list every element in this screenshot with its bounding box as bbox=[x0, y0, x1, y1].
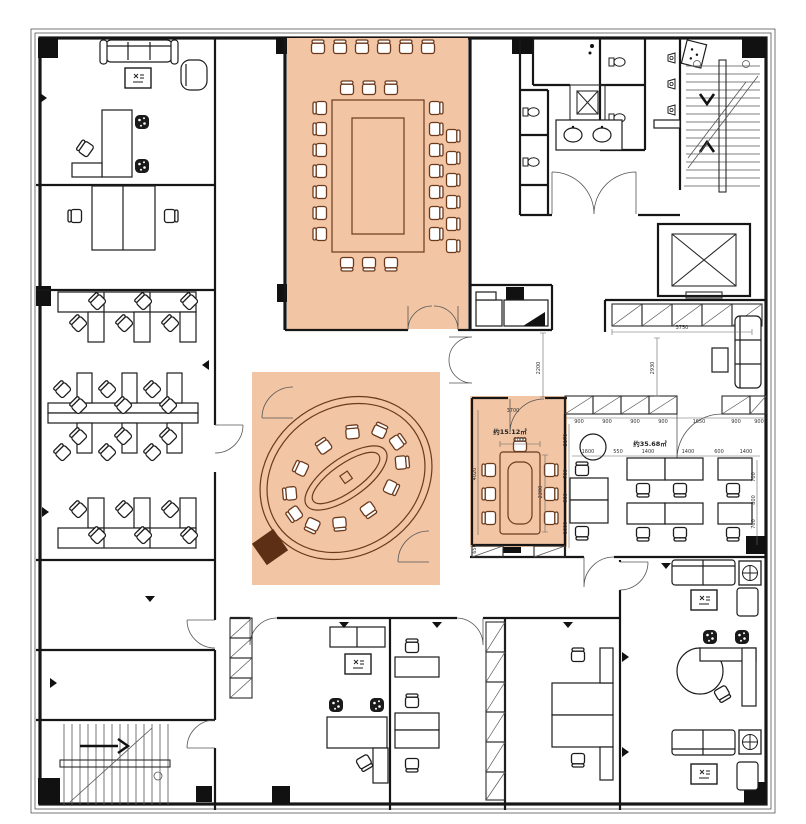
svg-text:1400: 1400 bbox=[740, 449, 753, 455]
tv-cabinet-icon bbox=[691, 590, 717, 610]
chair bbox=[68, 210, 82, 223]
tv-cabinet-icon bbox=[691, 764, 717, 784]
label-small-meeting-area: 约15.12㎡ bbox=[493, 427, 527, 436]
plant-icon bbox=[735, 630, 749, 644]
dim-meeting-h: 2200 bbox=[538, 486, 544, 499]
svg-text:1600: 1600 bbox=[582, 449, 595, 455]
bottom-office-a bbox=[327, 622, 388, 783]
dim-lounge-w: 3750 bbox=[676, 325, 689, 331]
toilet-icon bbox=[523, 158, 539, 166]
floor-plan-svg: 2200 3750 2930 900 900 900 900 1650 900 … bbox=[0, 0, 806, 824]
plant-icon bbox=[703, 630, 717, 644]
chair bbox=[356, 754, 374, 772]
svg-text:900: 900 bbox=[630, 419, 640, 425]
open-office bbox=[570, 434, 752, 541]
dim-lounge-h: 2930 bbox=[650, 362, 656, 375]
office-two-desk bbox=[68, 186, 178, 250]
cabinet-column-bottom-left bbox=[230, 618, 252, 698]
svg-text:600: 600 bbox=[714, 449, 724, 455]
sofa bbox=[106, 40, 172, 62]
round-side-table bbox=[739, 561, 761, 585]
ceiling-fixture-icon bbox=[563, 622, 573, 628]
chair bbox=[76, 139, 95, 157]
svg-text:1400: 1400 bbox=[682, 449, 695, 455]
plant-icon bbox=[135, 159, 149, 173]
svg-text:550: 550 bbox=[613, 449, 623, 455]
reception-room bbox=[40, 40, 207, 177]
shaft-x bbox=[577, 91, 598, 114]
wall-fixture-icon bbox=[42, 507, 49, 517]
wall-fixture-icon bbox=[622, 747, 629, 757]
dim-meeting-left: 4020 bbox=[472, 468, 478, 481]
plant-icon bbox=[329, 698, 343, 712]
highlight-large-conference bbox=[287, 38, 468, 329]
svg-text:700: 700 bbox=[751, 519, 757, 529]
toilet-icon bbox=[523, 108, 539, 116]
mop-sink bbox=[681, 40, 706, 68]
bottom-office-c bbox=[552, 622, 629, 780]
svg-text:1400: 1400 bbox=[642, 449, 655, 455]
armchair bbox=[737, 588, 758, 616]
svg-text:700: 700 bbox=[751, 472, 757, 482]
svg-text:2170: 2170 bbox=[563, 434, 569, 447]
dim-corridor: 2200 bbox=[536, 362, 542, 375]
cabinet-strip-office-top bbox=[565, 396, 766, 414]
wall-fixture-icon bbox=[202, 360, 209, 370]
workstation-area bbox=[42, 292, 209, 548]
round-side-table bbox=[739, 730, 761, 754]
urinal-icon bbox=[668, 105, 675, 115]
sofa bbox=[735, 316, 761, 388]
plant-icon bbox=[135, 115, 149, 129]
svg-text:900: 900 bbox=[731, 419, 741, 425]
wall-fixture-icon bbox=[622, 652, 629, 662]
dim-meeting-top: 3700 bbox=[507, 408, 520, 414]
stair-arrow-down bbox=[700, 94, 714, 104]
tv-cabinet-icon bbox=[345, 654, 371, 674]
chair bbox=[165, 210, 179, 223]
dim-meeting-w: 1000 bbox=[514, 437, 527, 443]
side-table bbox=[712, 348, 728, 372]
stairwell-bottom-left bbox=[60, 724, 170, 806]
sink-counter bbox=[556, 120, 622, 150]
tv-cabinet-icon bbox=[125, 68, 151, 88]
svg-text:800: 800 bbox=[751, 495, 757, 505]
armchair bbox=[181, 60, 207, 90]
bottom-office-b bbox=[395, 622, 442, 772]
dim-meeting-b-left: 650 bbox=[472, 544, 478, 554]
svg-text:900: 900 bbox=[754, 419, 764, 425]
wall-fixture-icon bbox=[40, 93, 47, 103]
svg-text:1000: 1000 bbox=[563, 522, 569, 535]
cabinet-column-bottom-mid bbox=[486, 622, 505, 800]
svg-text:900: 900 bbox=[658, 419, 668, 425]
plant-icon bbox=[370, 698, 384, 712]
svg-text:1650: 1650 bbox=[693, 419, 706, 425]
desk bbox=[327, 717, 387, 748]
urinal-icon bbox=[668, 53, 675, 63]
label-open-office-area: 约35.68㎡ bbox=[633, 439, 667, 448]
stairwell-top-right bbox=[686, 60, 760, 192]
svg-text:900: 900 bbox=[574, 419, 584, 425]
svg-text:800: 800 bbox=[563, 493, 569, 503]
ceiling-fixture-icon bbox=[432, 622, 442, 628]
column bbox=[38, 38, 58, 58]
executive-office bbox=[661, 560, 761, 790]
ceiling-fixture-icon bbox=[661, 563, 671, 569]
lounge-area bbox=[712, 316, 761, 388]
desk bbox=[102, 110, 132, 177]
floor-plan-canvas: 2200 3750 2930 900 900 900 900 1650 900 … bbox=[0, 0, 806, 824]
svg-text:900: 900 bbox=[602, 419, 612, 425]
svg-text:700: 700 bbox=[563, 469, 569, 479]
urinal-icon bbox=[668, 79, 675, 89]
toilet-icon bbox=[609, 58, 625, 66]
armchair bbox=[737, 762, 758, 790]
